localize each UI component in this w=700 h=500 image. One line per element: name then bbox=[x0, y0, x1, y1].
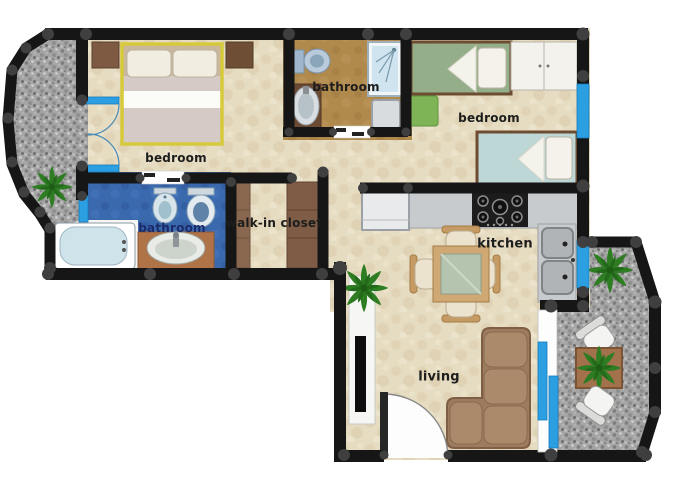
sliding-door bbox=[142, 171, 184, 184]
bathtub bbox=[55, 223, 135, 269]
sliding-window bbox=[549, 376, 558, 448]
bidet bbox=[153, 188, 177, 223]
room-label-bathroom-main: bathroom bbox=[138, 221, 205, 235]
rug bbox=[410, 96, 438, 126]
room-label-kitchen: kitchen bbox=[477, 237, 533, 252]
plant bbox=[577, 346, 622, 391]
cooktop bbox=[472, 192, 528, 227]
single-bed-blue bbox=[477, 132, 577, 184]
washing-machine bbox=[372, 100, 400, 128]
sliding-window bbox=[538, 342, 547, 420]
toilet bbox=[292, 49, 330, 73]
floor-plan: bedroom bathroom bedroom bathroom walk-i… bbox=[0, 0, 700, 500]
fridge bbox=[362, 191, 409, 230]
plant bbox=[340, 264, 389, 313]
kitchen-sink bbox=[538, 224, 576, 302]
window bbox=[577, 84, 589, 138]
floor-plan-canvas bbox=[0, 0, 700, 500]
room-label-living: living bbox=[418, 370, 460, 385]
plant bbox=[31, 166, 72, 207]
nightstand bbox=[92, 42, 119, 68]
single-bed-green bbox=[411, 42, 511, 94]
sliding-door bbox=[334, 126, 370, 138]
wardrobe bbox=[511, 42, 577, 90]
washbasin bbox=[138, 232, 214, 270]
room-label-walk-in-closet: walk-in closet bbox=[226, 216, 322, 230]
room-label-bedroom-second: bedroom bbox=[458, 111, 520, 125]
plant bbox=[587, 247, 634, 294]
room-label-bathroom-top: bathroom bbox=[312, 80, 379, 94]
room-label-bedroom-main: bedroom bbox=[145, 151, 207, 165]
nightstand bbox=[226, 42, 253, 68]
